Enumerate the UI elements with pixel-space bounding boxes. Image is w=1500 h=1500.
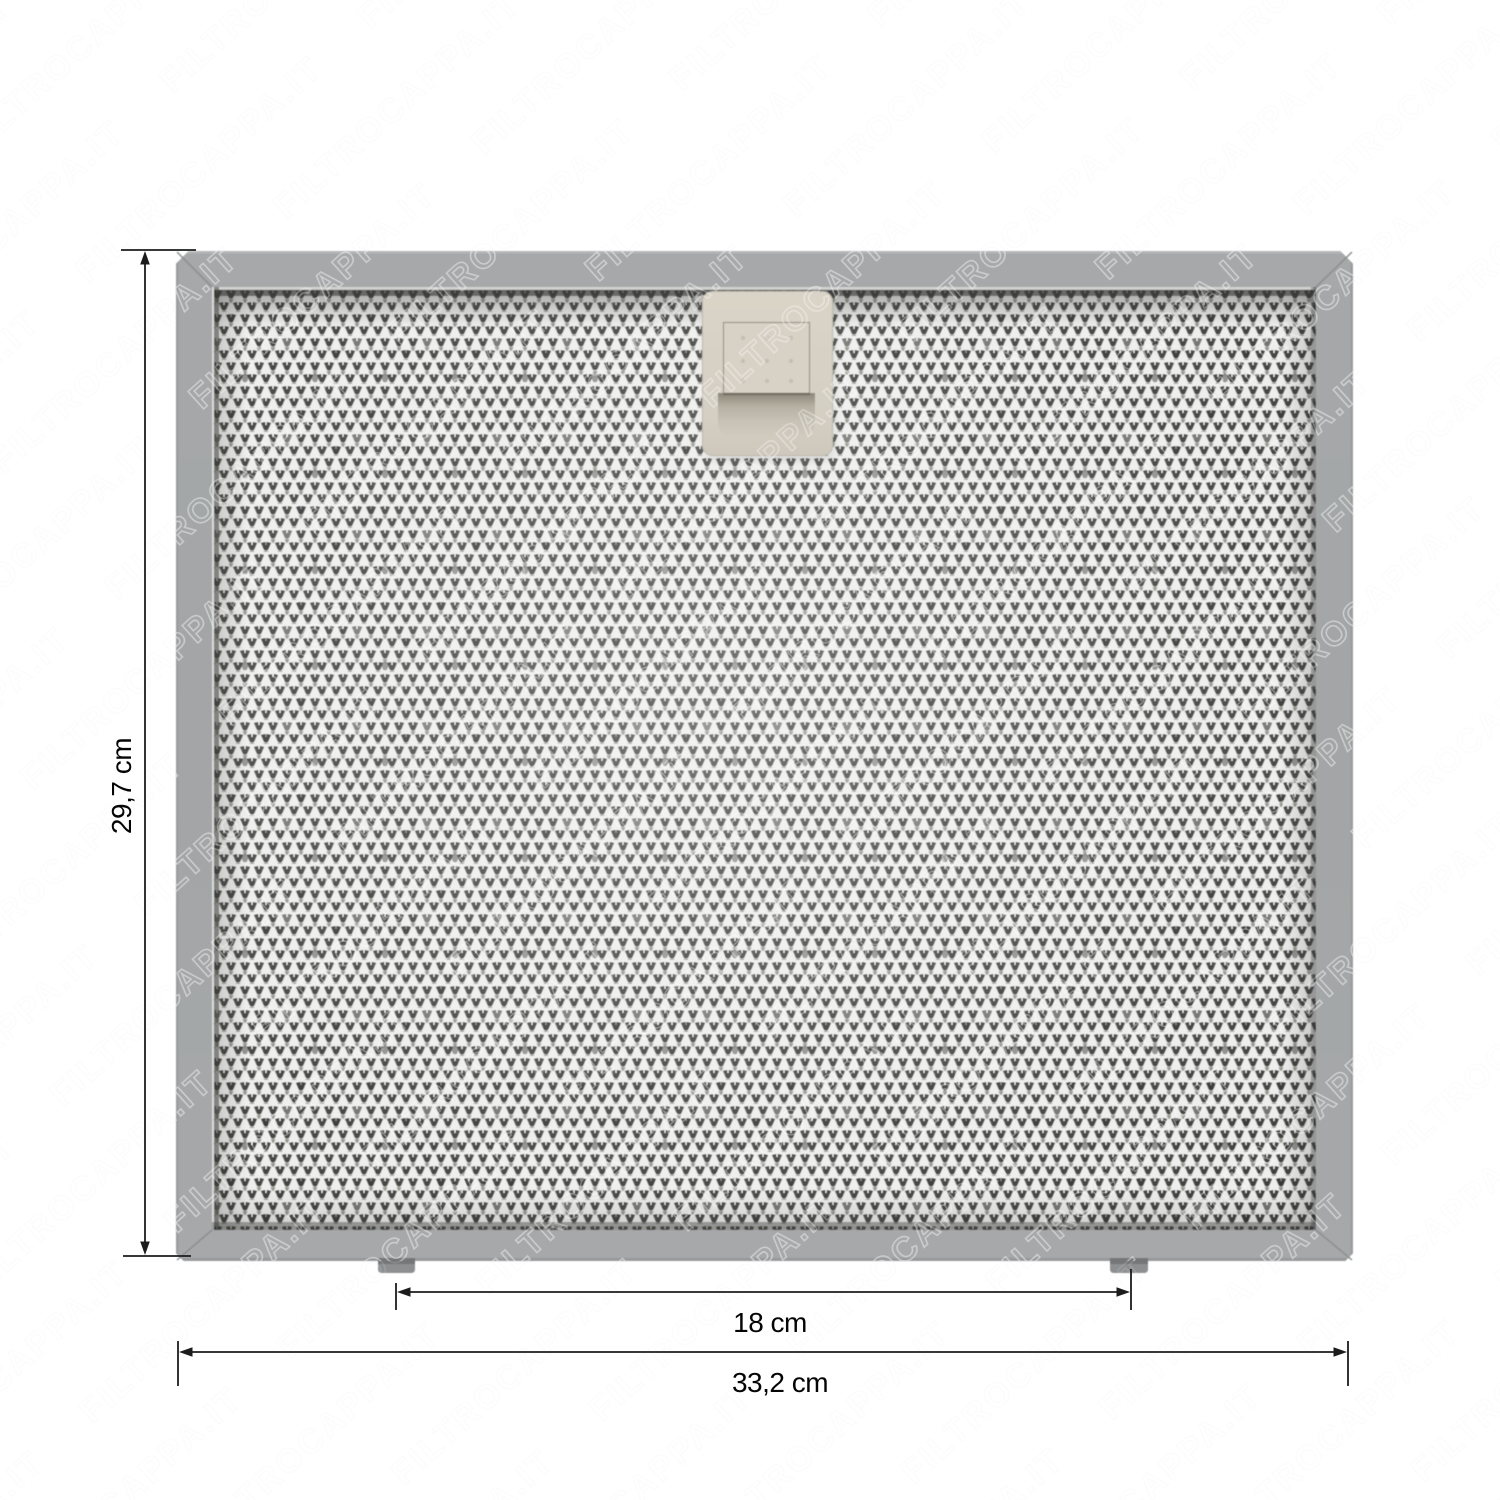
svg-text:33,2 cm: 33,2 cm (732, 1367, 828, 1398)
svg-text:18 cm: 18 cm (733, 1307, 807, 1338)
svg-text:29,7 cm: 29,7 cm (106, 738, 137, 834)
